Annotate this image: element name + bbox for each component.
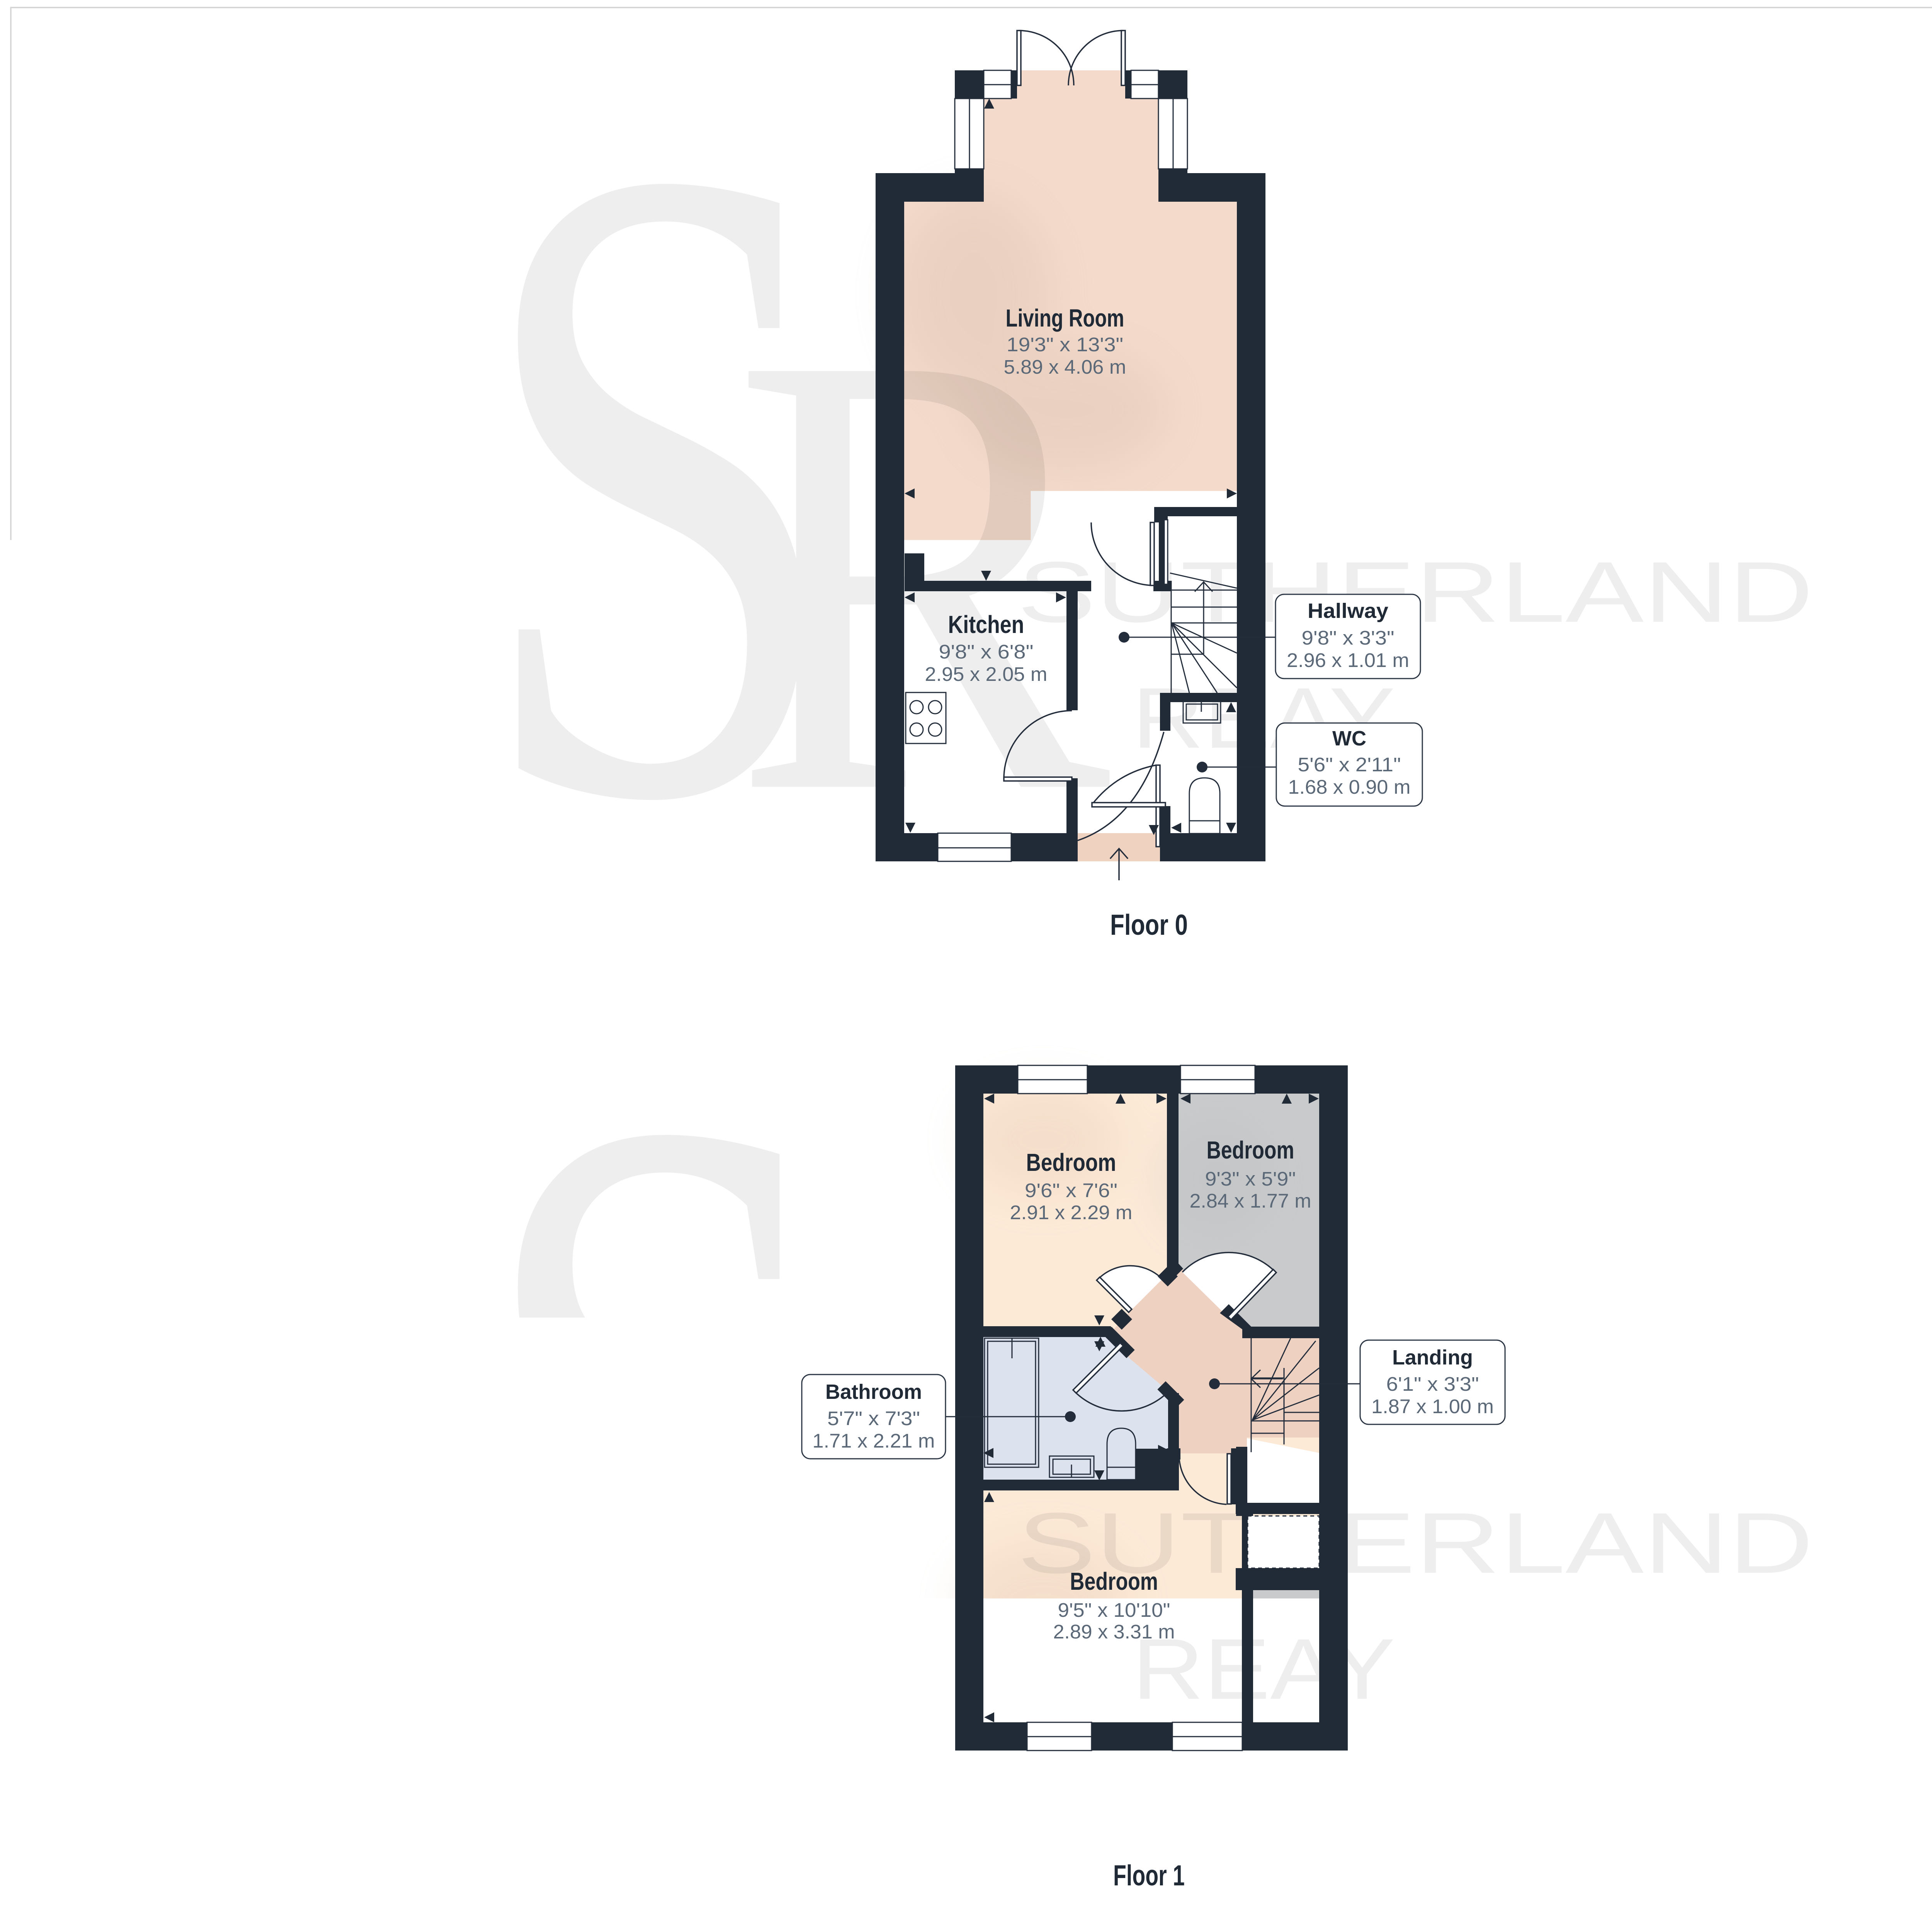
svg-text:Kitchen: Kitchen xyxy=(948,611,1024,638)
svg-text:Bedroom: Bedroom xyxy=(1026,1148,1116,1176)
svg-text:2.84 x 1.77 m: 2.84 x 1.77 m xyxy=(1190,1190,1311,1212)
svg-text:2.95 x 2.05 m: 2.95 x 2.05 m xyxy=(925,663,1048,685)
svg-text:Floor 1: Floor 1 xyxy=(1113,1859,1185,1892)
svg-text:S: S xyxy=(473,925,844,1917)
svg-text:2.89 x 3.31 m: 2.89 x 3.31 m xyxy=(1053,1621,1175,1643)
svg-text:2.96 x 1.01 m: 2.96 x 1.01 m xyxy=(1287,649,1409,671)
svg-text:Floor 0: Floor 0 xyxy=(1110,908,1188,941)
svg-text:9'6" x 7'6": 9'6" x 7'6" xyxy=(1025,1179,1117,1201)
svg-text:5'7" x 7'3": 5'7" x 7'3" xyxy=(827,1407,920,1429)
svg-text:9'8" x 6'8": 9'8" x 6'8" xyxy=(939,641,1034,663)
svg-text:2.91 x 2.29 m: 2.91 x 2.29 m xyxy=(1010,1201,1133,1223)
svg-text:Hallway: Hallway xyxy=(1308,599,1388,623)
svg-text:Bedroom: Bedroom xyxy=(1207,1136,1294,1164)
svg-text:S: S xyxy=(473,0,844,990)
svg-text:WC: WC xyxy=(1332,727,1366,750)
svg-text:1.71 x 2.21 m: 1.71 x 2.21 m xyxy=(813,1430,935,1452)
svg-text:5.89 x 4.06 m: 5.89 x 4.06 m xyxy=(1004,356,1126,378)
svg-text:Bedroom: Bedroom xyxy=(1070,1567,1158,1595)
svg-text:Landing: Landing xyxy=(1392,1346,1473,1369)
svg-text:9'3" x 5'9": 9'3" x 5'9" xyxy=(1205,1168,1296,1190)
svg-text:19'3" x 13'3": 19'3" x 13'3" xyxy=(1007,333,1123,356)
svg-text:1.87 x 1.00 m: 1.87 x 1.00 m xyxy=(1371,1395,1494,1417)
svg-text:9'8" x 3'3": 9'8" x 3'3" xyxy=(1302,627,1395,649)
svg-text:Bathroom: Bathroom xyxy=(825,1380,922,1404)
svg-text:9'5" x 10'10": 9'5" x 10'10" xyxy=(1058,1599,1170,1621)
svg-text:6'1" x 3'3": 6'1" x 3'3" xyxy=(1386,1373,1479,1395)
svg-text:1.68 x 0.90 m: 1.68 x 0.90 m xyxy=(1288,776,1411,798)
svg-text:5'6" x 2'11": 5'6" x 2'11" xyxy=(1298,754,1401,776)
svg-text:Living Room: Living Room xyxy=(1006,304,1124,332)
